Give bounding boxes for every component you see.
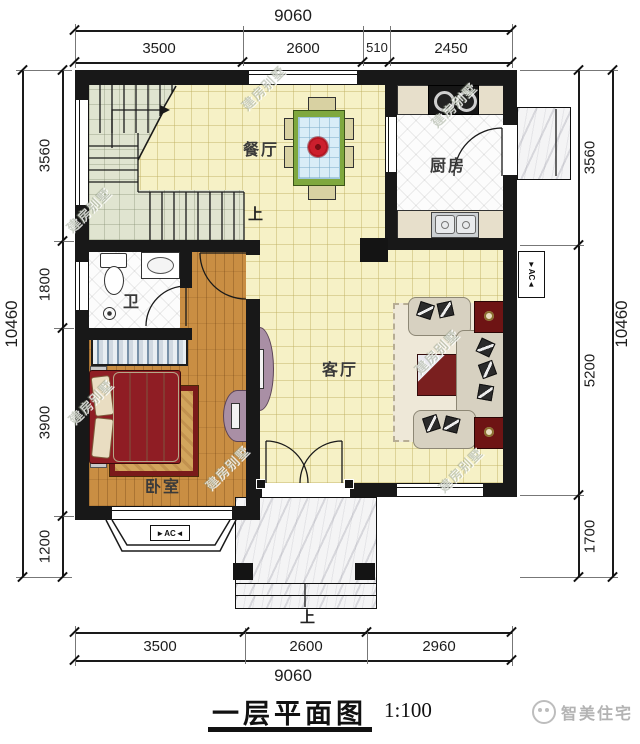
room-label-dining: 餐厅 (233, 136, 289, 160)
entry-up-label: 上 (300, 606, 315, 627)
kitchen-pass-window (385, 117, 397, 172)
room-label-kitchen: 厨房 (420, 152, 476, 176)
dim-right-seg: 5200 (582, 339, 599, 403)
witness-line (520, 495, 584, 496)
wall (75, 70, 89, 100)
dim-bottom-overall: 9060 (263, 666, 323, 686)
floor-plan-canvas: ►AC◄ ►AC◄ 餐厅 (0, 0, 640, 744)
plant-icon (484, 427, 494, 437)
dim-right-overall: 10460 (612, 292, 632, 356)
plant-icon (484, 311, 494, 321)
scale-label: 1:100 (384, 698, 432, 723)
ac-unit-bay: ►AC◄ (150, 525, 190, 541)
dim-left-seg: 1200 (37, 515, 54, 579)
dim-line (578, 70, 580, 577)
sink-drain-icon (441, 221, 449, 229)
wall (246, 240, 260, 255)
room-label-living: 客厅 (312, 356, 368, 380)
witness-line (520, 245, 584, 246)
dim-left-seg: 3560 (37, 124, 54, 188)
wall (75, 328, 192, 340)
dim-top-overall: 9060 (263, 6, 323, 26)
witness-line (520, 577, 618, 578)
dim-left-seg: 3900 (37, 391, 54, 455)
sink-drain-icon (462, 221, 470, 229)
wall (357, 70, 517, 85)
wall (385, 238, 517, 250)
dim-right-seg: 1700 (582, 505, 599, 569)
page-title: 一层平面图 (212, 692, 367, 731)
stair-window (75, 100, 89, 205)
bed-blanket (113, 372, 179, 462)
dim-bottom-seg: 2960 (409, 638, 469, 655)
dim-right-seg: 3560 (582, 126, 599, 190)
wall (246, 299, 260, 506)
dim-top-seg: 510 (361, 40, 393, 55)
wall (350, 483, 397, 497)
dim-top-seg: 3500 (129, 40, 189, 57)
bathroom-window (75, 262, 89, 310)
porch-pier-right (355, 563, 375, 580)
ac-label: ►AC◄ (156, 529, 183, 538)
sofa-pillow-icon (437, 301, 455, 319)
flower-centerpiece-icon (308, 137, 328, 157)
wall (483, 483, 517, 497)
wall (385, 172, 397, 238)
dim-line (75, 30, 512, 32)
stairs-up-label: 上 (248, 203, 263, 224)
dim-line (75, 660, 512, 662)
ac-label: ►AC◄ (527, 261, 536, 288)
dim-bottom-seg: 2600 (276, 638, 336, 655)
wall (503, 175, 517, 497)
wall (503, 70, 517, 125)
witness-line (367, 628, 368, 664)
ac-unit-side: ►AC◄ (518, 251, 545, 298)
dim-line (75, 62, 512, 64)
title-underline (208, 727, 372, 732)
wall (385, 85, 397, 117)
witness-line (245, 628, 246, 664)
dim-bottom-seg: 3500 (130, 638, 190, 655)
dim-top-seg: 2600 (273, 40, 333, 57)
dim-top-seg: 2450 (421, 40, 481, 57)
wall (75, 240, 260, 252)
door-jamb (256, 479, 266, 489)
brand-logo: 智美住宅 (532, 700, 633, 724)
wardrobe (91, 336, 188, 366)
witness-line (520, 70, 618, 71)
floor-drain-icon (103, 307, 116, 320)
bay-window-opening (112, 506, 232, 520)
kitchen-side-landing (517, 107, 571, 180)
dim-line (75, 632, 512, 634)
porch-pier-left (233, 563, 253, 580)
brand-logo-text: 智美住宅 (561, 700, 633, 724)
bath-sink-basin-icon (147, 257, 174, 274)
room-label-bedroom: 卧室 (131, 473, 195, 497)
room-label-bathroom: 卫 (121, 288, 143, 312)
dim-left-seg: 1800 (37, 253, 54, 317)
dim-line (62, 70, 64, 577)
dim-left-overall: 10460 (2, 292, 22, 356)
sofa-pillow-icon (477, 384, 494, 401)
dim-line (22, 70, 24, 577)
brand-logo-icon (532, 700, 556, 724)
door-jamb (344, 479, 354, 489)
wall (75, 70, 249, 85)
wall (180, 252, 192, 288)
wall (75, 506, 112, 520)
tv-screen-icon (231, 403, 240, 429)
column-pier (360, 238, 388, 262)
